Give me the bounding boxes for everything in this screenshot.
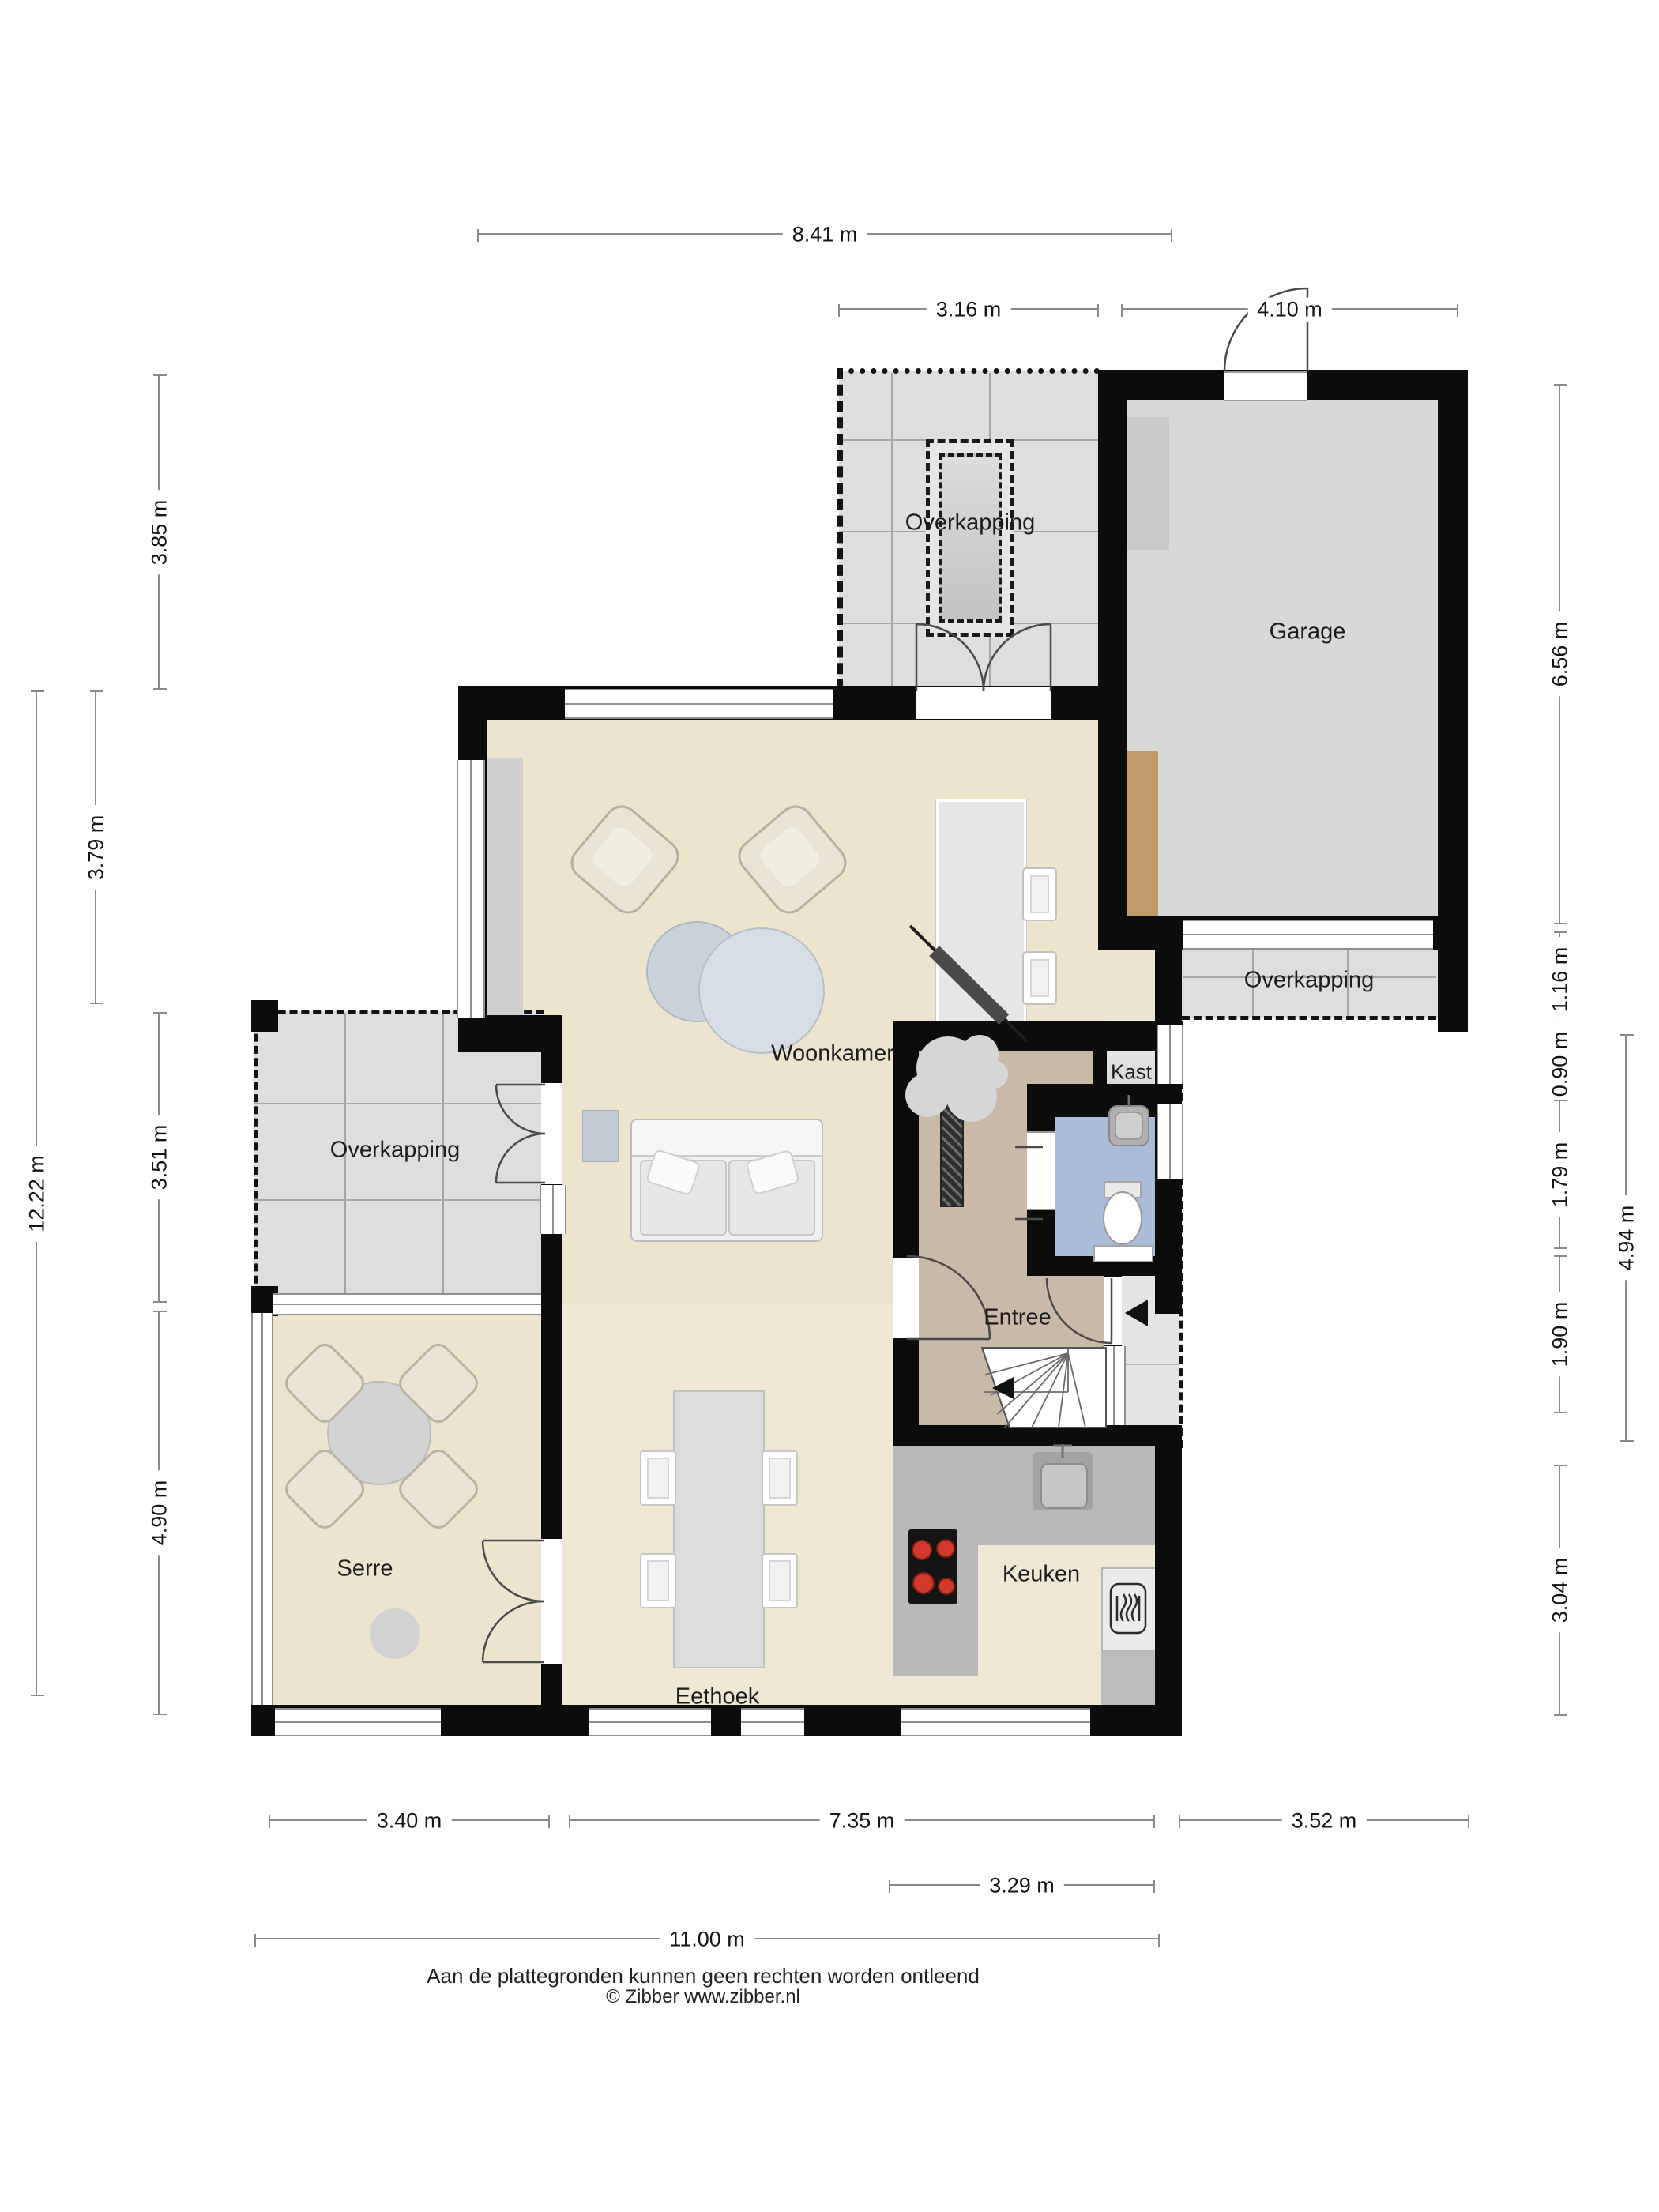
dimension-right-090: 0.90 m: [1559, 1027, 1560, 1100]
room-label-overkapping-right: Overkapping: [1244, 968, 1374, 994]
double-door-swing: [496, 1134, 545, 1183]
toilet-fixtures: [1094, 1095, 1153, 1262]
toilet-door-mark: [1015, 1147, 1043, 1219]
dimension-right-116: 1.16 m: [1559, 932, 1560, 1027]
double-door-swing: [496, 1085, 545, 1134]
dimension-left-385: 3.85 m: [158, 375, 160, 689]
dimension-label: 3.29 m: [980, 1874, 1064, 1898]
dimension-right-656: 6.56 m: [1559, 385, 1560, 924]
dimension-left-379: 3.79 m: [95, 691, 96, 1003]
dimension-label: 1.79 m: [1548, 1132, 1573, 1217]
tv-on-island: [910, 926, 1027, 1041]
door-swing: [907, 1256, 990, 1339]
dimension-bottom-352: 3.52 m: [1179, 1819, 1469, 1821]
dimension-left-490: 4.90 m: [158, 1311, 160, 1714]
room-label-eethoek: Eethoek: [675, 1684, 759, 1710]
dimension-label: 3.52 m: [1282, 1809, 1367, 1834]
staircase: [982, 1348, 1106, 1428]
dimension-top-841: 8.41 m: [478, 233, 1172, 235]
room-label-woonkamer: Woonkamer: [771, 1041, 894, 1067]
dimension-label: 12.22 m: [25, 1145, 50, 1242]
double-door-swing: [483, 1540, 544, 1601]
room-label-kast: Kast: [1111, 1060, 1152, 1085]
room-label-keuken: Keuken: [1003, 1562, 1080, 1588]
dimension-top-316: 3.16 m: [839, 308, 1098, 310]
oven-icon: [1111, 1584, 1145, 1633]
dimension-left-351: 3.51 m: [158, 1013, 160, 1302]
dimension-right-494: 4.94 m: [1625, 1035, 1627, 1441]
dimension-bottom-340: 3.40 m: [269, 1819, 549, 1821]
dimension-label: 3.04 m: [1548, 1548, 1573, 1633]
dimension-top-410: 4.10 m: [1122, 308, 1458, 310]
dimension-bottom-329: 3.29 m: [890, 1884, 1154, 1886]
cooktop-burners: [912, 1540, 954, 1594]
dimension-label: 4.94 m: [1615, 1196, 1639, 1281]
room-label-entree: Entree: [984, 1305, 1051, 1331]
dimension-label: 3.51 m: [148, 1115, 172, 1200]
dimension-label: 0.90 m: [1548, 1021, 1573, 1106]
coat-rack-cloud: [905, 1035, 1008, 1122]
dimension-label: 7.35 m: [820, 1809, 905, 1834]
plan-overlay: [0, 0, 1659, 2212]
dimension-label: 4.90 m: [148, 1471, 172, 1556]
dimension-label: 3.40 m: [367, 1809, 452, 1834]
dimension-label: 1.16 m: [1548, 938, 1573, 1022]
front-door-swing: [1047, 1278, 1112, 1343]
dimension-right-179: 1.79 m: [1559, 1100, 1560, 1248]
dimension-label: 4.10 m: [1247, 298, 1332, 322]
room-label-overkapping-left: Overkapping: [330, 1138, 460, 1164]
dimension-label: 3.16 m: [927, 298, 1011, 322]
double-door-swing: [984, 624, 1051, 691]
dimension-label: 11.00 m: [660, 1928, 754, 1952]
dimension-label: 8.41 m: [783, 223, 867, 247]
dimension-bottom-735: 7.35 m: [570, 1819, 1154, 1821]
entrance-arrow: [1125, 1300, 1148, 1326]
room-label-overkapping-top: Overkapping: [905, 510, 1035, 536]
footer-disclaimer: Aan de plattegronden kunnen geen rechten…: [427, 1964, 980, 1988]
dimension-right-190: 1.90 m: [1559, 1256, 1560, 1413]
dimension-label: 3.85 m: [148, 490, 172, 574]
dimension-label: 1.90 m: [1548, 1292, 1573, 1377]
dimension-label: 3.79 m: [85, 805, 109, 890]
dimension-label: 6.56 m: [1548, 612, 1573, 697]
room-label-serre: Serre: [337, 1556, 393, 1582]
dimension-left-1222: 12.22 m: [36, 691, 37, 1695]
double-door-swing: [483, 1601, 544, 1662]
double-door-swing: [916, 624, 984, 691]
kitchen-faucet: [1053, 1444, 1072, 1458]
room-label-garage: Garage: [1270, 619, 1346, 645]
footer-copyright: © Zibber www.zibber.nl: [606, 1986, 800, 2008]
dimension-right-304: 3.04 m: [1559, 1465, 1560, 1715]
dimension-bottom-1100: 11.00 m: [255, 1938, 1159, 1939]
floorplan-page: Woonkamer Serre Eethoek Keuken Entree Ka…: [0, 0, 1659, 2212]
